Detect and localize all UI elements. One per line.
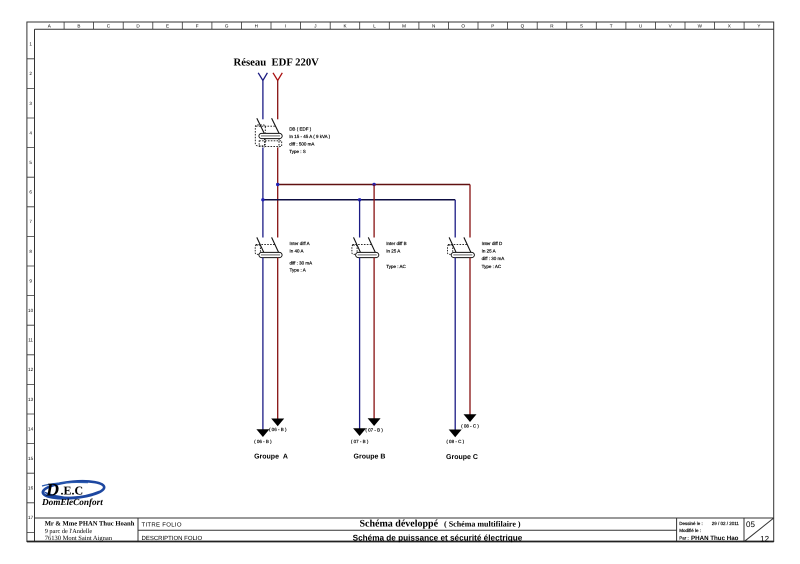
svg-text:8: 8 xyxy=(29,249,32,254)
svg-text:Type : AC: Type : AC xyxy=(482,264,502,269)
svg-text:.E.C: .E.C xyxy=(61,484,84,498)
svg-text:2: 2 xyxy=(29,71,32,76)
svg-text:Modifié le :: Modifié le : xyxy=(679,528,701,533)
svg-text:Type : A: Type : A xyxy=(290,268,306,273)
svg-text:L: L xyxy=(373,24,376,29)
svg-text:( 08 - C ): ( 08 - C ) xyxy=(461,424,479,429)
svg-text:Inter diff D: Inter diff D xyxy=(482,241,503,246)
svg-text:15: 15 xyxy=(28,456,34,461)
svg-text:Schéma de puissance et sécurit: Schéma de puissance et sécurité électriq… xyxy=(353,533,523,542)
svg-text:R: R xyxy=(550,24,554,29)
svg-text:In 40 A: In 40 A xyxy=(290,248,304,253)
svg-text:W: W xyxy=(698,24,703,29)
svg-text:Groupe B: Groupe B xyxy=(354,453,386,460)
svg-text:Type : AC: Type : AC xyxy=(386,264,406,269)
svg-text:Inter diff B: Inter diff B xyxy=(386,241,406,246)
svg-text:M: M xyxy=(402,24,406,29)
svg-text:( 06 - B ): ( 06 - B ) xyxy=(254,439,272,444)
svg-text:In 25 A: In 25 A xyxy=(482,248,496,253)
svg-text:N: N xyxy=(432,24,435,29)
svg-text:Par :: Par : xyxy=(679,536,689,541)
svg-text:4: 4 xyxy=(29,130,32,135)
svg-text:16: 16 xyxy=(28,486,34,491)
svg-text:17: 17 xyxy=(28,515,34,520)
svg-text:( 07 - B ): ( 07 - B ) xyxy=(365,427,383,432)
svg-text:05: 05 xyxy=(746,520,755,529)
svg-text:PHAN Thuc Hao: PHAN Thuc Hao xyxy=(691,535,739,542)
svg-text:29 / 02 / 2011: 29 / 02 / 2011 xyxy=(712,521,740,526)
svg-text:7: 7 xyxy=(29,219,32,224)
svg-text:diff : 500 mA: diff : 500 mA xyxy=(289,142,314,147)
svg-text:DomEleConfort: DomEleConfort xyxy=(41,497,103,507)
svg-text:U: U xyxy=(639,24,642,29)
svg-text:In 15 - 45 A ( 9 kVA ): In 15 - 45 A ( 9 kVA ) xyxy=(289,134,330,139)
svg-text:( 08 - C ): ( 08 - C ) xyxy=(446,439,464,444)
svg-text:Q: Q xyxy=(521,24,525,29)
svg-text:D: D xyxy=(136,24,140,29)
svg-text:5: 5 xyxy=(29,160,32,165)
svg-text:Mr & Mme PHAN Thuc Hoanh: Mr & Mme PHAN Thuc Hoanh xyxy=(45,521,135,528)
svg-text:V: V xyxy=(669,24,673,29)
svg-text:K: K xyxy=(343,24,347,29)
svg-text:3: 3 xyxy=(29,101,32,106)
svg-text:A: A xyxy=(48,24,52,29)
svg-text:C: C xyxy=(107,24,111,29)
svg-text:Groupe C: Groupe C xyxy=(446,454,478,461)
svg-text:B: B xyxy=(77,24,80,29)
svg-text:Groupe A: Groupe A xyxy=(254,454,288,461)
svg-text:Inter diff A: Inter diff A xyxy=(290,241,310,246)
svg-text:Type : S: Type : S xyxy=(289,149,306,154)
svg-text:13: 13 xyxy=(28,397,34,402)
svg-text:12: 12 xyxy=(760,535,769,544)
svg-text:6: 6 xyxy=(29,190,32,195)
svg-text:TITRE FOLIO: TITRE FOLIO xyxy=(142,522,182,529)
svg-text:DESCRIPTION FOLIO: DESCRIPTION FOLIO xyxy=(142,535,203,542)
svg-text:( 07 - B ): ( 07 - B ) xyxy=(351,439,369,444)
svg-text:J: J xyxy=(314,24,316,29)
svg-text:G: G xyxy=(225,24,229,29)
svg-text:O: O xyxy=(461,24,465,29)
svg-text:1: 1 xyxy=(29,42,32,47)
svg-text:X: X xyxy=(728,24,731,29)
svg-text:14: 14 xyxy=(28,426,34,431)
svg-text:Réseau EDF 220V: Réseau EDF 220V xyxy=(234,57,320,69)
svg-text:In 25 A: In 25 A xyxy=(386,248,400,253)
svg-text:T: T xyxy=(610,24,613,29)
svg-text:diff : 30 mA: diff : 30 mA xyxy=(482,256,505,261)
svg-text:10: 10 xyxy=(28,308,34,313)
svg-text:diff : 30 mA: diff : 30 mA xyxy=(290,260,313,265)
svg-text:F: F xyxy=(196,24,199,29)
svg-text:I: I xyxy=(285,24,286,29)
svg-text:( 06 - B ): ( 06 - B ) xyxy=(269,427,287,432)
svg-text:Y: Y xyxy=(757,24,760,29)
svg-text:9: 9 xyxy=(29,278,32,283)
svg-text:DB ( EDF ): DB ( EDF ) xyxy=(289,126,312,131)
svg-text:12: 12 xyxy=(28,367,34,372)
svg-text:Schéma développé ( Schéma mu: Schéma développé ( Schéma multifilaire ) xyxy=(359,519,520,530)
svg-text:H: H xyxy=(255,24,258,29)
svg-text:9 parc de l'Andelle: 9 parc de l'Andelle xyxy=(45,528,93,535)
svg-text:11: 11 xyxy=(28,338,33,343)
svg-text:S: S xyxy=(580,24,583,29)
svg-text:76130 Mont Saint Aignan: 76130 Mont Saint Aignan xyxy=(45,535,113,542)
svg-text:E: E xyxy=(166,24,169,29)
svg-text:P: P xyxy=(491,24,494,29)
svg-text:Dessiné le :: Dessiné le : xyxy=(679,521,703,526)
